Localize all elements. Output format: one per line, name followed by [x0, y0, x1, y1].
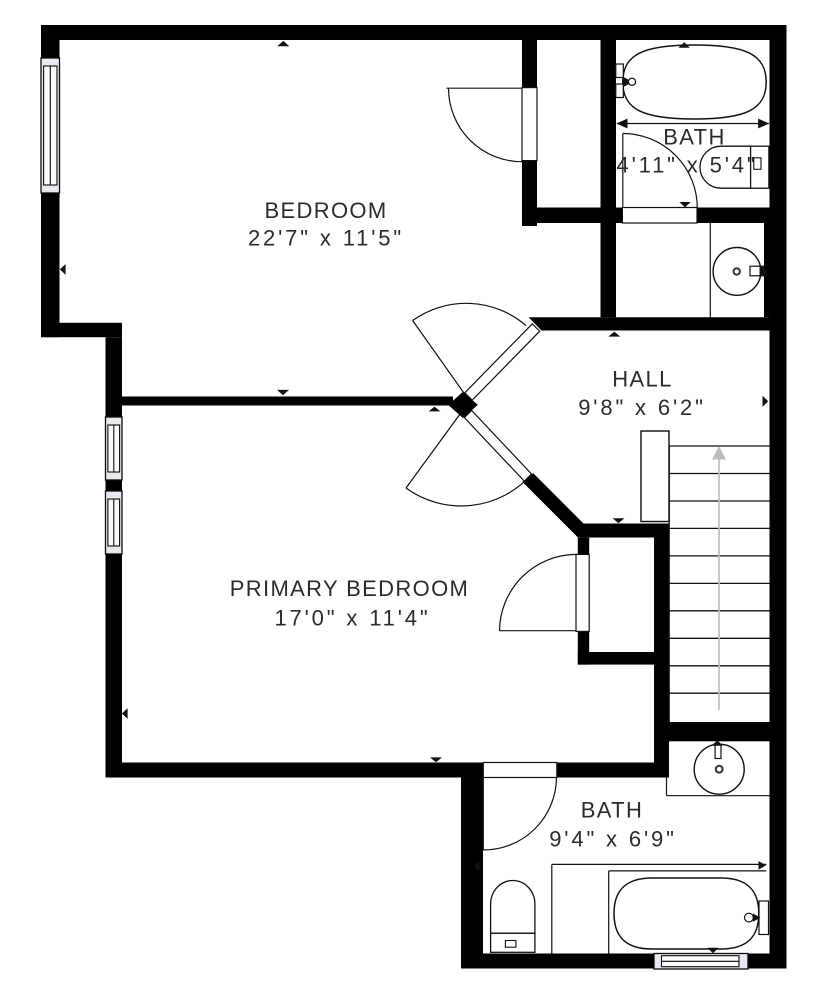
svg-text:9'8" x 6'2": 9'8" x 6'2": [578, 395, 706, 420]
svg-text:BEDROOM: BEDROOM: [264, 198, 387, 223]
svg-text:BATH: BATH: [581, 798, 643, 823]
svg-text:4'11" x 5'4": 4'11" x 5'4": [617, 153, 758, 178]
svg-text:HALL: HALL: [612, 367, 672, 392]
svg-text:PRIMARY BEDROOM: PRIMARY BEDROOM: [230, 576, 469, 601]
svg-text:BATH: BATH: [663, 125, 725, 150]
svg-text:9'4" x 6'9": 9'4" x 6'9": [549, 827, 677, 852]
svg-text:17'0" x 11'4": 17'0" x 11'4": [274, 606, 430, 631]
svg-text:22'7" x 11'5": 22'7" x 11'5": [248, 226, 404, 251]
